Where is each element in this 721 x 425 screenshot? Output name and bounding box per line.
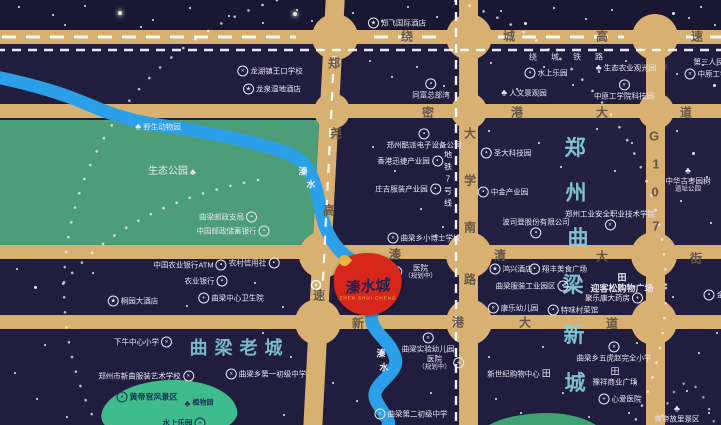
star-dot (152, 19, 154, 21)
district-label-char: 郑 (565, 132, 586, 162)
map-poi: ×曲梁乡五虎赵完全小学 (577, 341, 652, 362)
road-name-char: 高 (323, 202, 335, 219)
poi-sublabel: （规划中） (404, 273, 437, 281)
river-name-char: 溱 (376, 347, 385, 360)
poi-label: 水上乐园 (163, 418, 193, 425)
poi-label: 香港迅捷产业园 (377, 156, 430, 165)
star-dot (311, 20, 313, 22)
star-dot (394, 170, 396, 172)
business-icon: • (195, 418, 206, 425)
road-name-char: 街 (690, 250, 702, 267)
star-dot (52, 14, 54, 16)
top-shade (0, 0, 721, 30)
star-dot (66, 416, 68, 418)
star-dot (676, 130, 678, 132)
school-icon: × (609, 341, 620, 352)
river-name-char: 水 (306, 178, 315, 191)
school-icon: × (375, 409, 386, 420)
road-name-char: 高 (596, 28, 608, 45)
star-dot (520, 412, 522, 414)
school-icon: × (161, 337, 172, 348)
star-dot (488, 130, 490, 132)
poi-label: 翔丰美食广场 (542, 264, 587, 273)
star-dot (500, 10, 502, 12)
map-poi: ×曲梁乡小博士学校 (388, 233, 461, 244)
school-icon: × (226, 369, 237, 380)
star-dot (631, 142, 633, 144)
star-dot (282, 306, 284, 308)
road-migang-avenue (0, 104, 721, 118)
map-poi: 香港迅捷产业园• (377, 156, 443, 167)
star-dot (290, 356, 292, 358)
star-dot (228, 15, 230, 17)
school-icon: × (423, 332, 434, 343)
map-poi: ♣生态农业观光园 (596, 63, 656, 72)
intersection (631, 299, 677, 345)
hotel-icon: ★ (368, 18, 379, 29)
map-poi: ×曲梁第二初级中学 (375, 409, 448, 420)
map-poi: +心爱医院 (599, 394, 642, 405)
river-name-char: 水 (379, 361, 388, 374)
poi-label: 波司登股份有限公司 (502, 217, 570, 226)
map-poi: ♣野生动物园 (135, 122, 180, 131)
school-icon: × (605, 220, 616, 231)
map-poi: 田豫祥商业广场 (593, 367, 638, 386)
star-dot (18, 6, 20, 8)
poi-label: 医院 (427, 354, 442, 363)
star-dot (332, 382, 334, 384)
poi-label: 龙湖镇王口学校 (250, 66, 303, 75)
project-pinyin: ZHEN SHUI CHENG (340, 296, 397, 301)
star-dot (64, 24, 66, 26)
poi-label: 第三人民医院 (694, 57, 721, 66)
map-poi: ♣人文景观园 (501, 88, 546, 97)
star-dot (716, 332, 718, 334)
metro-name-char: 线 (444, 198, 452, 209)
business-icon: • (481, 148, 492, 159)
hotel-icon: ★ (108, 296, 119, 307)
map-poi: ×曲梁乡第一初级中学 (226, 369, 307, 380)
map-poi: ×中原工学院科技园 (594, 79, 654, 100)
road-name-char: 大 (596, 248, 608, 265)
poi-label: 中国农业银行ATM (153, 260, 213, 269)
star-dot (36, 398, 38, 400)
map-poi: ♣中华古枣园树遗址公园 (666, 166, 711, 194)
road-name-char: 大 (596, 104, 608, 121)
old-town-label: 曲梁老城 (183, 334, 290, 360)
metro-name-char: 7 (446, 175, 450, 184)
south-scenic-area (474, 413, 606, 425)
star-dot (92, 272, 94, 274)
business-icon: • (704, 290, 715, 301)
poi-label: 中原工学院科技园 (594, 91, 654, 100)
road-name-char: 密 (422, 104, 434, 121)
poi-label: 郑州酷派电子设备公司 (387, 140, 462, 149)
star-dot (262, 22, 264, 24)
road-name-char: 绕 (401, 28, 413, 45)
map-poi: 水上乐园• (163, 418, 206, 425)
poi-label: 聚乐康大药房 (585, 293, 630, 302)
railway-name-char: 铁 (573, 52, 581, 63)
poi-label: 农村信用社 (229, 258, 267, 267)
star-dot (628, 412, 630, 414)
road-name-char: 清 (494, 247, 506, 264)
star-dot (572, 84, 574, 86)
eco-park-area (0, 0, 340, 425)
district-label-char: 州 (566, 177, 587, 207)
hospital-icon: + (198, 293, 209, 304)
business-icon: • (268, 258, 279, 269)
map-poi: 曲梁服装工业园区• (496, 281, 569, 292)
road-name-char: 港 (452, 314, 464, 331)
poi-label: 农业银行 (185, 276, 215, 285)
project-name: 溱水城 (345, 274, 391, 298)
star-dot (283, 414, 285, 416)
map-poi: •圣大科技园 (481, 148, 532, 159)
star-dot (14, 372, 16, 374)
railway-name-char: 绕 (529, 52, 537, 63)
star-dot (118, 11, 122, 15)
map-poi: 郑州市新曲服装艺术学校× (98, 371, 194, 382)
star-dot (524, 22, 527, 25)
star-dot (34, 286, 37, 289)
business-icon: • (217, 276, 228, 287)
poi-label: 曲梁中心卫生院 (211, 293, 264, 302)
road-name-char: 南 (464, 219, 476, 236)
star-dot (490, 62, 492, 64)
map-poi: 农村信用社• (229, 258, 280, 269)
star-dot (407, 6, 409, 8)
tree-icon: ♣ (190, 168, 196, 177)
project-logo: 溱水城 ZHEN SHUI CHENG (330, 247, 406, 321)
business-icon: • (246, 212, 257, 223)
road-name-char: 0 (651, 185, 658, 200)
map-poi: •黄帝宫风景区 (117, 392, 178, 403)
road-name-char: 速 (313, 287, 325, 304)
tree-icon: ♣ (135, 123, 141, 132)
school-icon: × (685, 69, 696, 80)
poi-label: 郑州工业安全职业技术学院 (565, 209, 655, 218)
hospital-icon: + (599, 394, 610, 405)
poi-label: 曲梁实验幼儿园 (402, 344, 455, 353)
intersection (312, 14, 358, 60)
poi-label: 黄帝故里景区 (655, 414, 700, 423)
road-name-char: 港 (511, 104, 523, 121)
map-poi: •郑州酷派电子设备公司 (387, 128, 462, 149)
poi-label: 中原工学院图书馆 (698, 69, 721, 78)
poi-sublabel: （规划中） (418, 364, 451, 372)
star-dot (713, 84, 716, 87)
poi-label: 金鹰国际 (717, 290, 721, 299)
map-poi: ×中原工学院图书馆 (685, 69, 721, 80)
poi-label: 圣大科技园 (494, 148, 532, 157)
poi-label: 水上乐园 (538, 68, 568, 77)
star-dot (430, 392, 432, 394)
map-poi: ♣植物园 (185, 400, 214, 409)
poi-label: 鸿兴酒店 (503, 264, 533, 273)
poi-label: 桐园大酒店 (121, 296, 159, 305)
tree-icon: ♣ (674, 404, 680, 413)
map-poi: ×康乐幼儿园 (488, 303, 539, 314)
poi-label: 曲梁邮政支局 (199, 212, 244, 221)
map-poi: ★桐园大酒店 (108, 296, 159, 307)
star-dot (369, 60, 371, 62)
map-poi: •特味村菜馆 (548, 305, 599, 316)
poi-label: 曲梁第二初级中学 (388, 409, 448, 418)
road-name-char: 大 (464, 125, 476, 142)
star-dot (356, 400, 358, 402)
hospital-icon: + (453, 358, 464, 369)
district-label-char: 城 (565, 367, 586, 397)
railway-name-char: 城 (551, 52, 559, 63)
star-dot (698, 352, 700, 354)
tree-icon: ♣ (685, 166, 691, 175)
poi-label: 生态农业观光园 (604, 63, 657, 72)
star-dot (676, 73, 678, 75)
poi-label: 心爱医院 (612, 394, 642, 403)
star-dot (625, 60, 627, 62)
star-dot (614, 170, 616, 172)
map-poi: 医院（规划中）+ (418, 354, 464, 372)
business-icon: • (259, 226, 270, 237)
star-dot (372, 146, 374, 148)
poi-label: 曲梁乡五虎赵完全小学 (577, 353, 652, 362)
map-poi: 曲梁邮政支局• (199, 212, 257, 223)
star-dot (686, 390, 688, 392)
business-icon: • (478, 187, 489, 198)
business-icon: • (419, 128, 430, 139)
star-dot (672, 12, 675, 15)
map-poi: 聚乐康大药房+ (585, 293, 643, 304)
map-poi: ★龙泉湿地酒店 (243, 84, 301, 95)
map-poi: ×龙湖镇王口学校 (237, 66, 303, 77)
star-dot (352, 12, 354, 14)
map-poi: ★郑飞国际酒店 (368, 18, 426, 29)
poi-label: 郑州市新曲服装艺术学校 (98, 371, 181, 380)
star-dot (84, 5, 86, 7)
star-dot (391, 76, 393, 78)
star-dot (254, 282, 256, 284)
road-name-char: 路 (464, 271, 476, 288)
business-icon: • (548, 305, 559, 316)
intersection (631, 232, 677, 278)
star-dot (495, 398, 497, 400)
poi-label: 生态公园 (148, 166, 188, 179)
star-dot (560, 166, 562, 168)
business-icon: • (525, 68, 536, 79)
poi-label: 郑飞国际酒店 (381, 18, 426, 27)
star-dot (680, 200, 682, 202)
tree-icon: ♣ (596, 64, 602, 73)
star-dot (16, 268, 18, 270)
star-dot (296, 9, 298, 11)
star-dot (416, 66, 418, 68)
map-poi: 庄吉服装产业园• (375, 184, 441, 195)
poi-label: 庄吉服装产业园 (375, 184, 428, 193)
business-icon: • (432, 156, 443, 167)
metro-name-char: 地 (444, 150, 452, 161)
poi-label: 新世纪购物中心 (487, 369, 540, 378)
intersection (632, 14, 678, 60)
location-map: 绕城高速密港大道溱清大街新港大道郑尧高速大学南路G107绕城铁路地铁7号线溱水溱… (0, 0, 721, 425)
star-dot (710, 222, 712, 224)
tree-icon: ♣ (501, 89, 507, 98)
poi-label: 特味村菜馆 (561, 305, 599, 314)
poi-label: 曲梁乡第一初级中学 (239, 369, 307, 378)
road-name-char: 道 (680, 104, 692, 121)
map-poi: ♣黄帝故里景区 (655, 404, 700, 423)
school-icon: × (183, 371, 194, 382)
road-name-char: 速 (691, 28, 703, 45)
river-name-char: 溱 (298, 165, 307, 178)
road-name-char: 郑 (328, 55, 340, 72)
business-icon: • (558, 281, 569, 292)
poi-label: 龙泉湿地酒店 (256, 84, 301, 93)
map-poi: 中国邮政储蓄银行• (197, 226, 270, 237)
map-poi: 下牛中心小学× (114, 337, 172, 348)
road-name-char: 道 (606, 315, 618, 332)
star-dot (688, 17, 690, 19)
map-poi: •金鹰国际 (704, 290, 721, 301)
star-dot (553, 7, 555, 9)
poi-label: 黄帝宫风景区 (130, 392, 178, 402)
star-dot (585, 18, 587, 20)
star-dot (714, 24, 716, 26)
map-poi: •翔丰美食广场 (529, 264, 587, 275)
poi-label: 康乐幼儿园 (501, 303, 539, 312)
map-poi: 生态公园♣ (148, 166, 196, 179)
star-dot (542, 346, 544, 348)
poi-label: 野生动物园 (143, 122, 181, 131)
hotel-icon: ★ (243, 84, 254, 95)
map-poi: ★鸿兴酒店 (490, 264, 533, 275)
tree-icon: ♣ (185, 400, 191, 409)
business-icon: • (426, 78, 437, 89)
hospital-icon: + (632, 293, 643, 304)
road-name-char: G (649, 129, 659, 144)
poi-sublabel: 遗址公园 (675, 186, 701, 194)
map-poi: 田迎客松购物广场 (590, 273, 653, 294)
poi-label: 医院 (413, 263, 428, 272)
map-poi: ×曲梁实验幼儿园 (402, 332, 455, 353)
school-icon: × (619, 79, 630, 90)
star-dot (708, 412, 710, 414)
business-icon: • (430, 184, 441, 195)
business-icon: • (117, 392, 128, 403)
business-icon: • (216, 260, 227, 271)
star-dot (700, 6, 702, 8)
poi-label: 同富总部湾 (412, 90, 450, 99)
road-name-char: 城 (503, 28, 515, 45)
business-icon: • (529, 264, 540, 275)
mall-icon: 田 (542, 370, 551, 379)
road-name-char: 大 (519, 314, 531, 331)
star-dot (293, 12, 297, 16)
map-poi: •中金产业园 (478, 187, 529, 198)
poi-label: 中国邮政储蓄银行 (197, 226, 257, 235)
poi-label: 中金产业园 (491, 187, 529, 196)
school-icon: × (388, 233, 399, 244)
map-poi: •水上乐园 (525, 68, 568, 79)
star-dot (186, 305, 188, 307)
poi-label: 人文景观园 (509, 88, 547, 97)
star-dot (436, 16, 438, 18)
road-ring-expressway (0, 30, 721, 44)
railway-name-char: 路 (595, 52, 603, 63)
school-icon: × (488, 303, 499, 314)
star-dot (672, 296, 674, 298)
star-dot (420, 208, 422, 210)
map-poi: •同富总部湾 (412, 78, 450, 99)
poi-label: 下牛中心小学 (114, 337, 159, 346)
intersection (446, 14, 492, 60)
road-name-char: 1 (652, 157, 659, 172)
star-dot (442, 226, 444, 228)
road-name-char: 学 (464, 172, 476, 189)
mall-icon: 田 (617, 273, 626, 282)
star-dot (588, 416, 590, 418)
star-dot (189, 7, 191, 9)
star-dot (44, 344, 46, 346)
poi-label: 中华古枣园树 (666, 176, 711, 185)
map-poi: +曲梁中心卫生院 (198, 293, 264, 304)
map-poi: 郑州工业安全职业技术学院× (565, 209, 655, 230)
star-dot (692, 152, 695, 155)
map-poi: 中国农业银行ATM• (153, 260, 226, 271)
map-poi: 农业银行• (185, 276, 228, 287)
star-dot (596, 128, 598, 130)
road-name-char: 尧 (330, 125, 342, 142)
poi-label: 曲梁服装工业园区 (496, 281, 556, 290)
poi-label: 豫祥商业广场 (593, 377, 638, 386)
business-icon: • (531, 228, 542, 239)
star-dot (140, 26, 142, 28)
map-poi: 第三人民医院 (694, 57, 721, 66)
metro-name-char: 号 (444, 186, 452, 197)
star-dot (538, 142, 540, 144)
poi-label: 曲梁乡小博士学校 (401, 233, 461, 242)
school-icon: × (237, 66, 248, 77)
poi-label: 植物园 (192, 400, 213, 409)
map-poi: 波司登股份有限公司• (502, 217, 570, 238)
hotel-icon: ★ (490, 264, 501, 275)
mall-icon: 田 (610, 367, 619, 376)
map-poi: 新世纪购物中心田 (487, 369, 551, 378)
star-dot (611, 9, 613, 11)
metro-name-char: 铁 (444, 162, 452, 173)
star-dot (488, 356, 490, 358)
